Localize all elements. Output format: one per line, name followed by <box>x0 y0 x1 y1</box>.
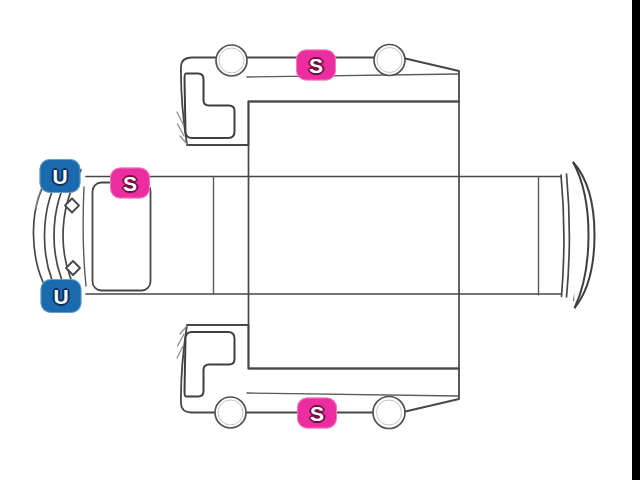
rear-view <box>561 162 595 308</box>
damage-marker-s-badge[interactable]: S <box>296 50 336 81</box>
damage-marker-s-badge[interactable]: S <box>297 398 337 429</box>
windshield-front <box>93 183 151 291</box>
wheel-top-left <box>216 45 247 76</box>
wheel-bottom-right <box>373 397 405 429</box>
wheel-top-right <box>374 45 405 76</box>
cab-roof-top-view <box>249 102 460 369</box>
damage-marker-u-badge[interactable]: U <box>41 279 82 313</box>
damage-marker-s-badge[interactable]: S <box>110 168 150 199</box>
damage-marker-u-badge[interactable]: U <box>40 159 81 193</box>
right-letterbox-bar <box>632 0 640 480</box>
wheel-bottom-left <box>215 397 246 428</box>
fold-lines <box>86 177 561 296</box>
damage-diagram-canvas: SUSUS <box>0 0 640 480</box>
